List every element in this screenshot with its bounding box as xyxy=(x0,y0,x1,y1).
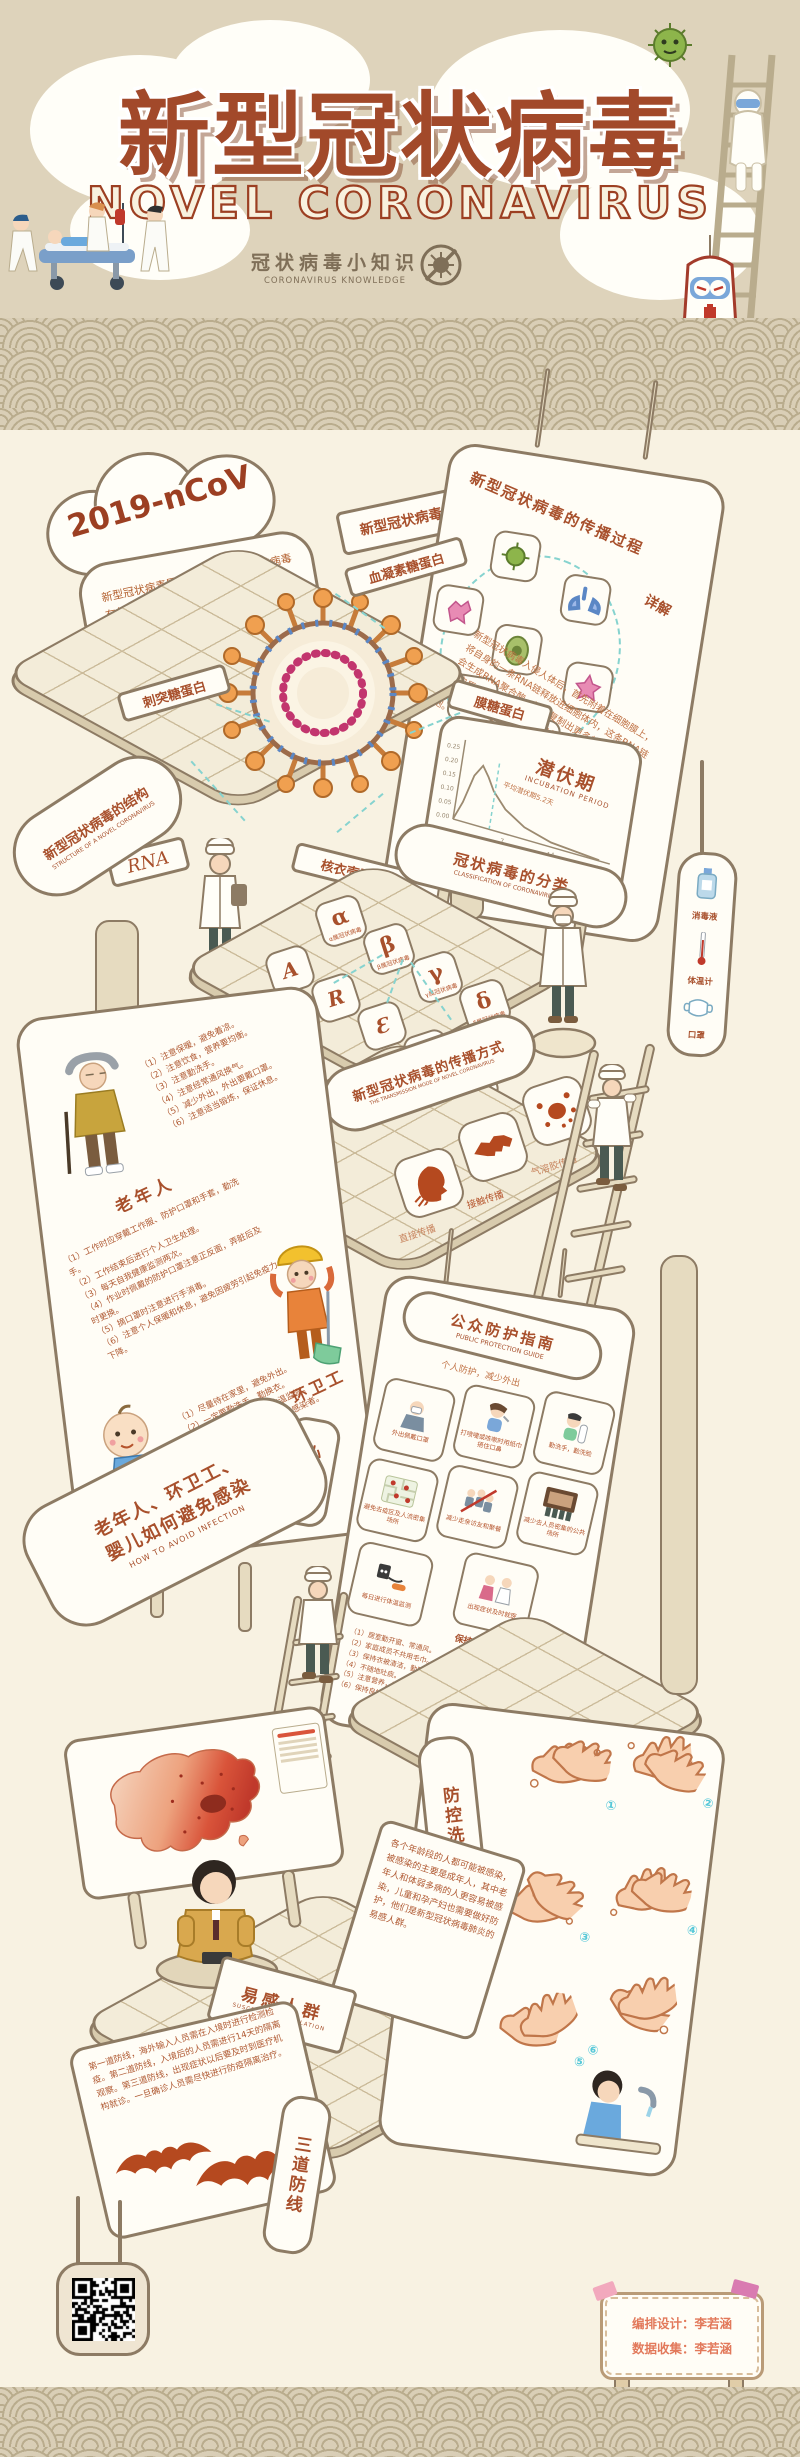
worker-tips: （1）工作时应穿戴工作服、防护口罩和手套，勤洗手。 （2）工作结束后进行个人卫生… xyxy=(62,1175,290,1365)
disinfectant-bottle-icon xyxy=(694,867,720,901)
qr-string xyxy=(76,2196,80,2266)
svg-text:0.20: 0.20 xyxy=(444,756,458,765)
svg-text:0.25: 0.25 xyxy=(446,742,460,751)
qr-tag xyxy=(56,2262,150,2356)
thermometer-icon xyxy=(696,931,708,966)
guide-tile: 避免去疫区及人流密集场所 xyxy=(354,1456,441,1544)
handshake-icon xyxy=(467,1126,518,1168)
thermometer-plug-doodle xyxy=(370,1559,413,1600)
wash-step-illustration: ② xyxy=(614,1727,721,1813)
wash-step-illustration: ④ xyxy=(599,1854,706,1940)
sign-post xyxy=(238,1562,252,1632)
sneeze-icon xyxy=(404,1158,454,1208)
no-gathering-doodle xyxy=(457,1481,500,1522)
spread-detail-label: 详解 xyxy=(641,590,675,621)
ladder-doctor-figure xyxy=(288,1566,348,1696)
map-legend-card xyxy=(271,1722,328,1794)
svg-text:0.00: 0.00 xyxy=(435,811,449,820)
virus-doodle-icon xyxy=(496,537,535,576)
tag-string xyxy=(700,760,704,858)
guide-tile: 打喷嚏或咳嗽时用纸巾捂住口鼻 xyxy=(451,1382,538,1470)
handwash-boy-doodle xyxy=(555,1408,596,1449)
footer-wave-pattern xyxy=(0,2387,800,2457)
no-virus-icon xyxy=(418,242,464,288)
qr-code xyxy=(72,2278,135,2341)
poster: 新型冠状病毒 NOVEL CORONAVIRUS 冠状病毒小知识 CORONAV… xyxy=(0,0,800,2457)
header-wave-pattern xyxy=(0,318,800,430)
doctor-visit-doodle xyxy=(476,1569,519,1610)
subtitle-cn: 冠状病毒小知识 xyxy=(250,248,420,275)
elderly-tips: （1）注意保暖，避免着凉。 （2）注意饮食，营养要均衡。 （3）注意勤洗手。 （… xyxy=(139,987,334,1134)
supplies-label: 口罩 xyxy=(687,1028,705,1041)
guide-tile: 勤洗手，勤洗脸 xyxy=(531,1389,618,1477)
wash-step-illustration: ⑤ xyxy=(486,1985,593,2071)
supplies-label: 体温计 xyxy=(687,974,713,988)
masked-doctor-figure xyxy=(528,888,598,1073)
lung-doodle-icon xyxy=(566,582,606,617)
y-axis-ticks: 0.25 0.20 0.15 0.10 0.05 0.00 xyxy=(435,742,460,820)
credit-data: 数据收集：李若涵 xyxy=(632,2336,732,2361)
wash-step-illustration: ① xyxy=(517,1729,624,1815)
qr-string xyxy=(118,2200,122,2266)
label-connector-line xyxy=(336,793,383,833)
kid-at-sink-illustration xyxy=(565,2060,675,2164)
elderly-illustration xyxy=(45,1045,150,1185)
wash-step-illustration: ⑥ xyxy=(587,1965,696,2069)
svg-text:平均潜伏期5.2天: 平均潜伏期5.2天 xyxy=(502,780,555,807)
susceptible-text: 各个年龄段的人都可能被感染，被感染的主要是成年人，其中老年人和体弱多病的人更容易… xyxy=(367,1837,514,1959)
credits-board: 编排设计：李若涵 数据收集：李若涵 xyxy=(600,2292,764,2396)
sneeze-girl-doodle xyxy=(476,1397,517,1438)
guide-tile: 减少走亲访友和聚餐 xyxy=(434,1463,521,1551)
guide-tile: 减少去人员密集的公共场所 xyxy=(514,1469,601,1557)
structure-sign-cn: 新型冠状病毒的结构 xyxy=(39,781,152,864)
mask-icon xyxy=(683,996,714,1020)
credit-design: 编排设计：李若涵 xyxy=(632,2311,732,2336)
virus-step-tile xyxy=(488,529,543,584)
guide-tile: 外出佩戴口罩 xyxy=(371,1376,458,1464)
svg-text:0.10: 0.10 xyxy=(440,784,454,793)
svg-text:0.15: 0.15 xyxy=(442,770,456,779)
climbing-doctor-figure xyxy=(580,1064,644,1214)
svg-text:0.05: 0.05 xyxy=(438,797,452,806)
supplies-tag: 消毒液 体温计 口罩 xyxy=(665,850,739,1059)
header-band: 新型冠状病毒 NOVEL CORONAVIRUS 冠状病毒小知识 CORONAV… xyxy=(0,0,800,430)
crowded-station-doodle xyxy=(538,1484,581,1525)
tall-pillar xyxy=(660,1255,698,1695)
supplies-label: 消毒液 xyxy=(692,909,718,923)
virus-doodle-icon xyxy=(440,592,477,629)
subtitle-en: CORONAVIRUS KNOWLEDGE xyxy=(250,276,420,286)
map-pins-doodle xyxy=(378,1471,421,1512)
stretcher-scene-illustration xyxy=(5,185,190,305)
masked-man-doodle xyxy=(395,1395,436,1436)
virus-step-tile xyxy=(558,572,613,627)
coronavirus-structure-illustration xyxy=(218,588,428,798)
virus-monster-icon xyxy=(648,23,692,67)
